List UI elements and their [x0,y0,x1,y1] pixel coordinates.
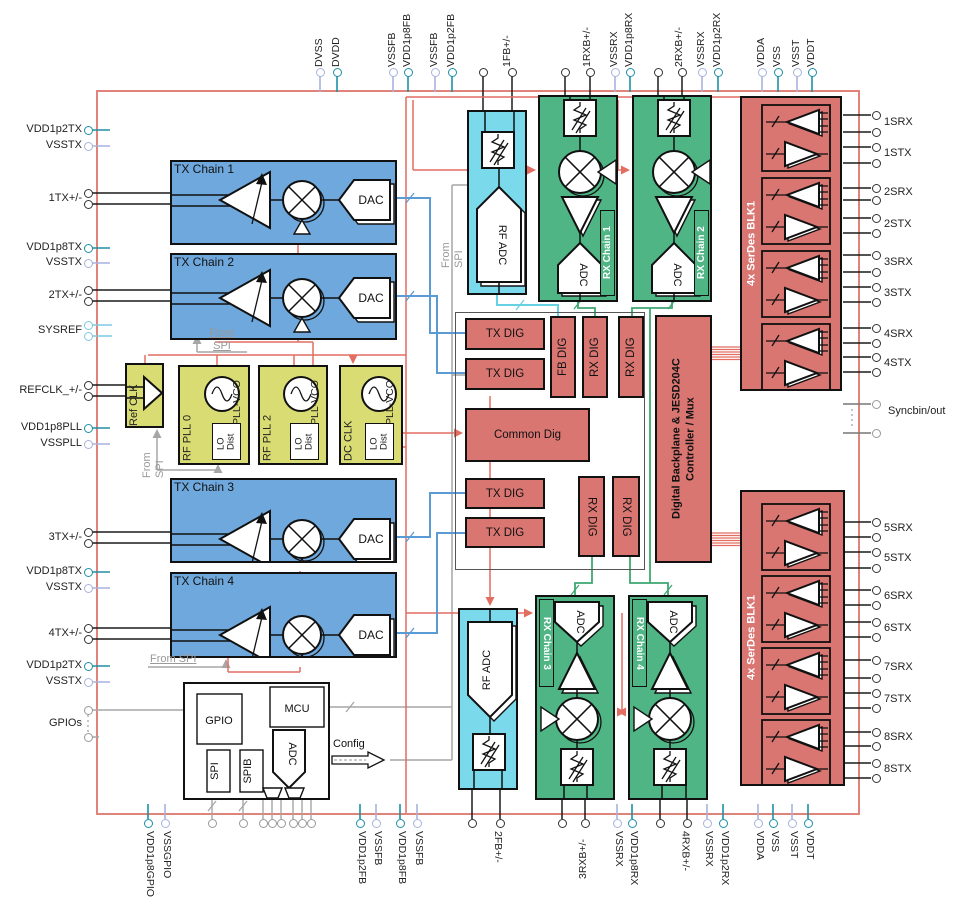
pin-circle [84,706,93,715]
pin-circle [872,674,881,683]
svg-text:SPI: SPI [209,762,221,780]
tx-chain-1-label: TX Chain 1 [174,162,234,176]
pin-circle [872,656,881,665]
digital-backplane: Digital Backplane & JESD204C Controller … [655,315,712,563]
svg-text:GPIO: GPIO [205,715,233,727]
pll-name-2: DC CLK [341,368,356,461]
mcu-group-internals: GPIO MCU SPI SPIB ADC [185,684,328,798]
pin-label-right-2SRX: 2SRX [884,186,934,198]
pin-circle [84,678,93,687]
pin-circle [808,68,817,77]
pin-label-left-VDD1p2TX: VDD1p2TX [2,123,82,135]
svg-text:ADC: ADC [574,610,586,633]
pin-label-left-VDD1p8TX: VDD1p8TX [2,241,82,253]
pin-label-left-3TX+/-: 3TX+/- [2,531,82,543]
pin-circle [872,214,881,223]
pin-circle [714,68,723,77]
pin-circle [316,68,325,77]
pin-circle [84,200,93,209]
pin-circle [586,68,595,77]
pin-circle [872,283,881,292]
pin-label-top-DVDD: DVDD [330,5,345,67]
note-from-spi-tx2: From SPI [199,327,245,357]
pin-label-bottom-VDD1p8RX: VDD1p8RX [625,831,640,905]
pin-circle [396,819,405,828]
svg-text:DAC: DAC [358,291,384,305]
pin-circle [719,819,728,828]
pin-label-left-4TX+/-: 4TX+/- [2,627,82,639]
pin-circle [872,196,881,205]
pin-circle [872,353,881,362]
pin-label-bottom-VDDT: VDDT [801,831,816,905]
pin-label-right-7STX: 7STX [884,693,934,705]
pin-label-bottom-VDDA: VDDA [751,831,766,905]
pin-label-top-VSSRX: VSSRX [608,5,623,67]
pin-label-left-VSSTX: VSSTX [2,581,82,593]
pin-label-top-VDD1p8FB: VDD1p8FB [401,5,416,67]
pin-circle [654,68,663,77]
pin-label-right-4SRX: 4SRX [884,328,934,340]
pin-circle [872,518,881,527]
pin-label-left-VDD1p2TX: VDD1p2TX [2,659,82,671]
pin-circle [698,68,707,77]
pin-label-right-3STX: 3STX [884,287,934,299]
pin-circle [372,819,381,828]
pin-label-top-VDD1p8RX: VDD1p8RX [623,5,638,67]
pin-circle [769,819,778,828]
pin-label-left-VSSTX: VSSTX [2,675,82,687]
pin-circle [448,68,457,77]
pin-circle [872,548,881,557]
pll-vco-label-0: PLL-VCO [231,367,246,425]
pin-circle [161,819,170,828]
pin-label-bottom-4RXB+/-: 4RXB+/- [677,831,692,905]
pin-label-top-2RXB+/-: 2RXB+/- [673,5,688,67]
pin-label-right-2STX: 2STX [884,218,934,230]
pin-label-bottom-VDD1p2FB: VDD1p2FB [353,831,368,905]
pin-circle [239,819,248,828]
pin-label-right-7SRX: 7SRX [884,661,934,673]
pin-circle [268,819,277,828]
pin-circle [611,68,620,77]
pin-label-bottom-VSSFB: VSSFB [369,831,384,905]
svg-text:ADC: ADC [577,263,589,286]
pin-circle [479,68,488,77]
config-label: Config [333,738,385,751]
pll-name-0: RF PLL 0 [180,368,195,461]
pin-circle [754,819,763,828]
pin-label-top-VSSFB: VSSFB [428,5,443,67]
pin-circle [703,819,712,828]
pin-label-right-8STX: 8STX [884,763,934,775]
pin-label-bottom-VDD1p8FB: VDD1p8FB [393,831,408,905]
pin-circle [774,68,783,77]
pin-circle [84,332,93,341]
pll-vco-label-1: PLL-VCO [309,367,324,425]
pin-circle [389,68,398,77]
pin-circle [561,68,570,77]
pin-circle [872,251,881,260]
pin-circle [84,189,93,198]
pin-label-top-VSS: VSS [771,5,786,67]
pin-circle [84,539,93,548]
pin-circle [84,142,93,151]
svg-text:MCU: MCU [284,703,309,715]
pin-label-left-VDD1p8PLL: VDD1p8PLL [2,421,82,433]
pin-circle [678,68,687,77]
pin-circle [356,819,365,828]
pin-label-bottom-VSS: VSS [766,831,781,905]
pin-circle [84,392,93,401]
pin-circle [84,733,93,742]
pin-label-left-SYSREF: SYSREF [2,324,82,336]
pin-label-top-DVSS: DVSS [313,5,328,67]
pin-label-bottom-VSST: VSST [785,831,800,905]
pin-circle [872,368,881,377]
pin-circle [558,819,567,828]
tx-chain-3-label: TX Chain 3 [174,480,234,494]
svg-text:SPIB: SPIB [242,758,254,783]
pin-circle [872,759,881,768]
pin-circle [872,324,881,333]
pin-circle [84,321,93,330]
pin-circle [872,400,881,409]
config-arrow [330,751,396,769]
lo-dist-2: LO Dist [365,423,394,460]
pin-circle [872,564,881,573]
pin-label-left-VSSTX: VSSTX [2,256,82,268]
pin-circle [289,819,298,828]
pin-label-left-VSSTX: VSSTX [2,139,82,151]
svg-text:DAC: DAC [358,193,384,207]
pin-label-right-3SRX: 3SRX [884,256,934,268]
pin-circle [626,68,635,77]
pin-circle [496,819,505,828]
lo-dist-0: LO Dist [212,423,241,460]
pin-circle [788,819,797,828]
tx-chain-4-label: TX Chain 4 [174,574,234,588]
digital-group-box [455,312,645,570]
tx-chain-2-label: TX Chain 2 [174,255,234,269]
pin-label-right-5SRX: 5SRX [884,522,934,534]
pin-circle [872,728,881,737]
pin-circle [581,819,590,828]
mcu-group: GPIO MCU SPI SPIB ADC [183,682,330,800]
svg-text:ADC: ADC [671,263,683,286]
digital-backplane-label: Digital Backplane & JESD204C Controller … [657,317,710,561]
pin-circle [333,68,342,77]
pin-circle [208,819,217,828]
pin-circle [84,584,93,593]
pin-circle [656,819,665,828]
pin-circle [468,819,477,828]
pin-circle [307,819,316,828]
pin-label-left-2TX+/-: 2TX+/- [2,289,82,301]
serdes-blk-bottom-label: 4x SerDes BLK1 [743,494,760,782]
pin-circle [872,742,881,751]
pin-circle [793,68,802,77]
pin-circle [84,528,93,537]
pin-label-bottom-VSSGPIO: VSSGPIO [158,831,173,905]
pin-label-top-1FB+/-: 1FB+/- [501,5,516,67]
pin-circle [872,633,881,642]
pin-circle [84,624,93,633]
pin-circle [84,126,93,135]
pin-circle [84,440,93,449]
note-from-spi-fbadc: From SPI [440,212,466,268]
note-from-spi-refclk: From SPI [141,426,167,478]
serdes-blk-top-label: 4x SerDes BLK1 [743,100,760,387]
note-from-spi-mcu: From SPI [150,653,230,667]
pll-vco-label-2: PLL-VCO [384,367,399,425]
pin-circle [683,819,692,828]
pin-circle [872,774,881,783]
fb-rf-adc-bottom-internals: RF ADC [460,610,516,788]
pin-circle [84,662,93,671]
pin-label-bottom-VSSRX: VSSRX [610,831,625,905]
pin-label-bottom-VSSRX: VSSRX [700,831,715,905]
pin-circle [613,819,622,828]
pin-circle [144,819,153,828]
pin-label-top-VDD1p2RX: VDD1p2RX [711,5,726,67]
pin-circle [872,601,881,610]
pin-circle [84,381,93,390]
block-diagram: From SPI From SPI From SPI From SPI Conf… [0,0,953,910]
pin-label-top-1RXB+/-: 1RXB+/- [581,5,596,67]
pin-circle [872,111,881,120]
svg-text:RF ADC: RF ADC [481,650,493,690]
pin-circle [872,339,881,348]
pll-name-1: RF PLL 2 [260,368,275,461]
svg-text:RF ADC: RF ADC [496,225,508,265]
pin-circle [298,819,307,828]
pin-circle [84,244,93,253]
pin-circle [872,268,881,277]
pin-label-top-VDD1p2FB: VDD1p2FB [445,5,460,67]
pin-circle [84,259,93,268]
svg-text:DAC: DAC [358,628,384,642]
pin-label-right-1SRX: 1SRX [884,116,934,128]
pin-circle [872,184,881,193]
pin-label-right-5STX: 5STX [884,552,934,564]
pin-circle [872,229,881,238]
pin-circle [628,819,637,828]
pin-label-top-VDDT: VDDT [805,5,820,67]
pin-label-right-1STX: 1STX [884,147,934,159]
rx-chain-2-label: RX Chain 2 [694,210,709,296]
pin-circle [758,68,767,77]
pin-label-right-6STX: 6STX [884,622,934,634]
rx-chain-4-label: RX Chain 4 [632,599,647,687]
pin-circle [872,618,881,627]
lo-dist-1: LO Dist [290,423,319,460]
pin-circle [872,128,881,137]
pin-circle [508,68,517,77]
pin-circle [84,297,93,306]
pin-circle [84,424,93,433]
svg-text:ADC: ADC [667,610,679,633]
pin-circle [872,298,881,307]
pin-circle [84,635,93,644]
pin-circle [872,429,881,438]
pin-label-right-6SRX: 6SRX [884,590,934,602]
pin-circle [259,819,268,828]
syncb-label: Syncbin/out [888,405,953,419]
pin-circle [413,819,422,828]
pin-label-left-REFCLK_+/-: REFCLK_+/- [2,384,82,396]
svg-text:DAC: DAC [358,532,384,546]
pin-circle [872,143,881,152]
pin-circle [872,689,881,698]
pin-circle [872,159,881,168]
pin-label-left-VSSPLL: VSSPLL [2,437,82,449]
pin-label-top-VSST: VSST [790,5,805,67]
pin-label-left-GPIOs: GPIOs [2,717,82,729]
fb-rf-adc-top-internals: RF ADC [469,112,525,293]
pin-label-top-VSSRX: VSSRX [695,5,710,67]
rx-chain-3-label: RX Chain 3 [539,599,554,687]
pin-circle [872,533,881,542]
pin-label-right-4STX: 4STX [884,357,934,369]
fb-rf-adc-top: RF ADC [467,110,527,295]
pin-label-top-VDDA: VDDA [755,5,770,67]
pin-label-bottom-VDD1p2RX: VDD1p2RX [716,831,731,905]
pin-circle [431,68,440,77]
fb-rf-adc-bottom: RF ADC [458,608,518,790]
pin-label-top-VSSFB: VSSFB [386,5,401,67]
pin-circle [84,568,93,577]
pin-label-bottom-VDD1p8GPIO: VDD1p8GPIO [141,831,156,905]
rx-chain-1-label: RX Chain 1 [600,210,615,296]
pin-label-left-VDD1p8TX: VDD1p8TX [2,565,82,577]
ref-clk-label: Ref CLK [127,365,141,426]
pin-circle [404,68,413,77]
pin-circle [277,819,286,828]
pin-label-right-8SRX: 8SRX [884,731,934,743]
pin-label-left-1TX+/-: 1TX+/- [2,192,82,204]
pin-label-bottom-2FB+/-: 2FB+/- [489,831,504,905]
pin-circle [84,286,93,295]
pin-circle [804,819,813,828]
pin-label-bottom-VSSFB: VSSFB [410,831,425,905]
pin-label-bottom-3RXB+/-: 3RXB+/- [577,831,592,879]
pin-circle [872,586,881,595]
svg-text:ADC: ADC [286,742,298,765]
pin-circle [872,704,881,713]
